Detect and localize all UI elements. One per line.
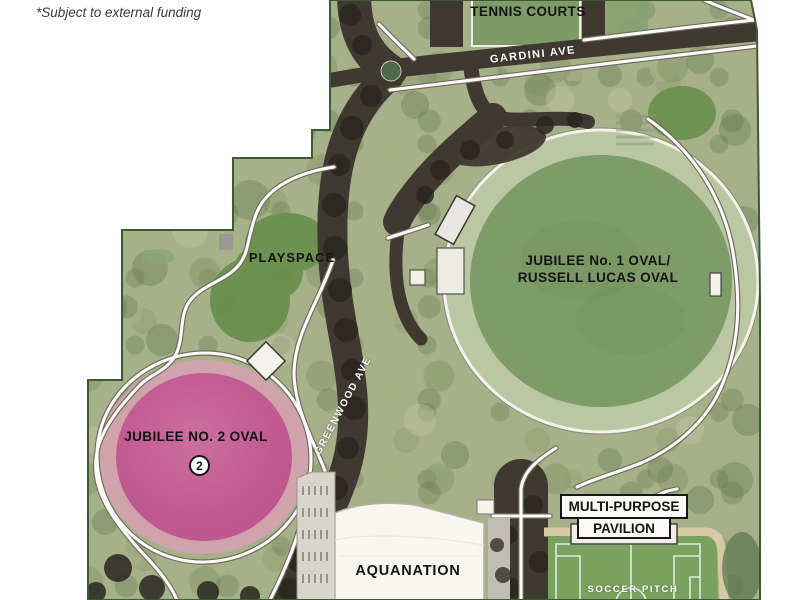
west-planting	[56, 231, 104, 257]
label-oval-1-line2: RUSSELL LUCAS OVAL	[513, 270, 683, 287]
roundabout	[375, 55, 407, 87]
oval-2-number-badge: 2	[189, 455, 210, 476]
label-oval-2: JUBILEE NO. 2 OVAL	[116, 429, 276, 446]
label-oval-1: JUBILEE No. 1 OVAL/ RUSSELL LUCAS OVAL	[513, 253, 683, 287]
label-soccer-pitch: SOCCER PITCH	[573, 584, 693, 596]
label-oval-1-line1: JUBILEE No. 1 OVAL/	[513, 253, 683, 270]
label-tennis-courts: TENNIS COURTS	[458, 4, 598, 21]
shelter-pad	[219, 234, 233, 250]
label-pavilion-line2: PAVILION	[577, 517, 671, 539]
aquanation-building	[297, 472, 511, 600]
funding-note: *Subject to external funding	[36, 5, 201, 20]
north-east-planting	[648, 86, 716, 140]
master-plan-map: *Subject to external funding TENNIS COUR…	[0, 0, 800, 600]
west-planting-2	[142, 249, 174, 265]
label-playspace: PLAYSPACE	[222, 250, 362, 266]
label-pavilion-line1: MULTI-PURPOSE	[560, 494, 688, 519]
label-aquanation: AQUANATION	[328, 562, 488, 580]
